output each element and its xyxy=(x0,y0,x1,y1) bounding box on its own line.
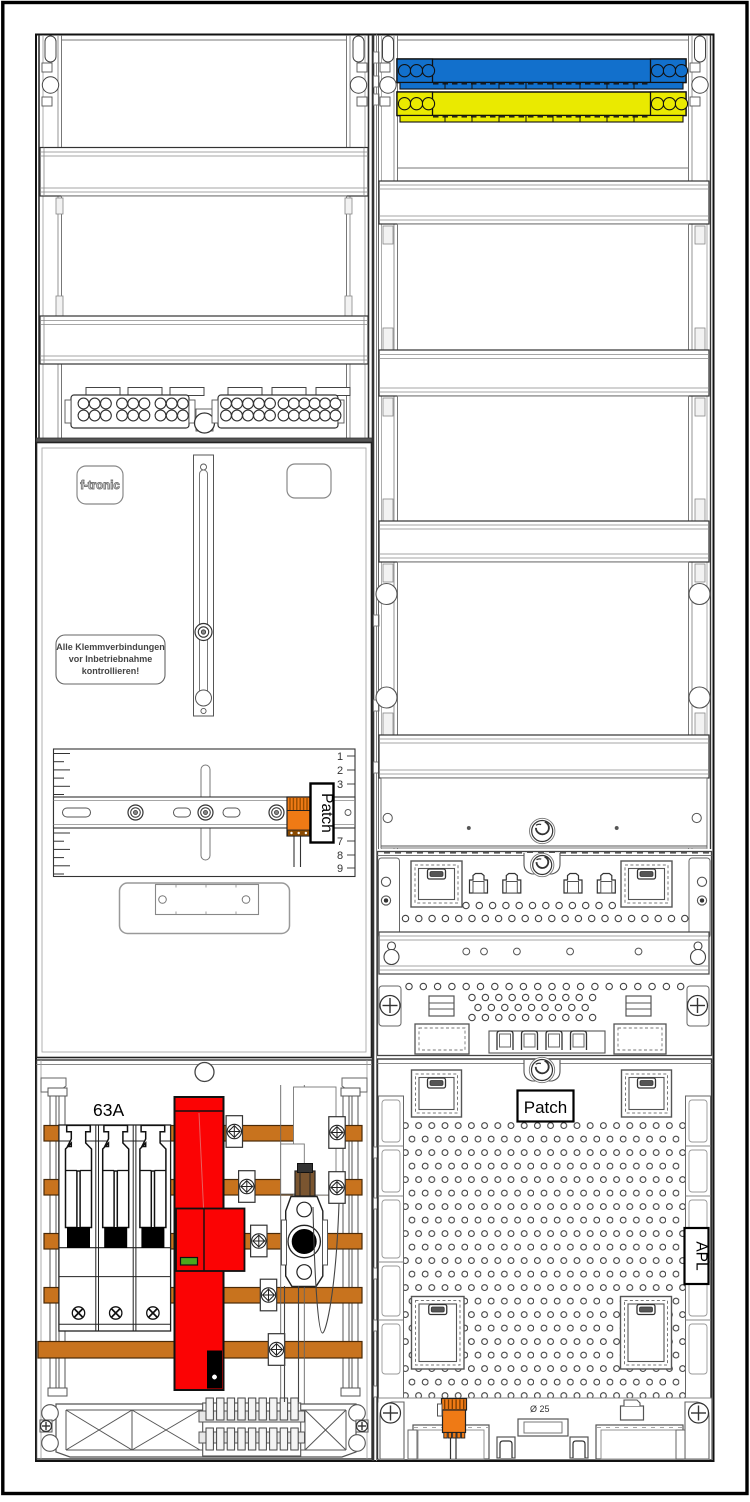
svg-text:Alle Klemmverbindungen: Alle Klemmverbindungen xyxy=(56,642,165,652)
svg-text:Patch: Patch xyxy=(318,793,335,833)
svg-text:3: 3 xyxy=(337,779,343,791)
svg-text:f-tronic: f-tronic xyxy=(80,480,120,492)
svg-text:63A: 63A xyxy=(93,1100,124,1120)
svg-text:1: 1 xyxy=(337,751,343,763)
svg-text:Patch: Patch xyxy=(524,1098,567,1117)
svg-text:9: 9 xyxy=(337,863,343,875)
svg-text:vor Inbetriebnahme: vor Inbetriebnahme xyxy=(69,654,153,664)
svg-text:Ø 25: Ø 25 xyxy=(530,1404,550,1414)
svg-text:2: 2 xyxy=(337,765,343,777)
svg-text:8: 8 xyxy=(337,850,343,862)
svg-text:APL: APL xyxy=(693,1241,710,1271)
svg-text:kontrollieren!: kontrollieren! xyxy=(82,666,140,676)
svg-text:7: 7 xyxy=(337,836,343,848)
